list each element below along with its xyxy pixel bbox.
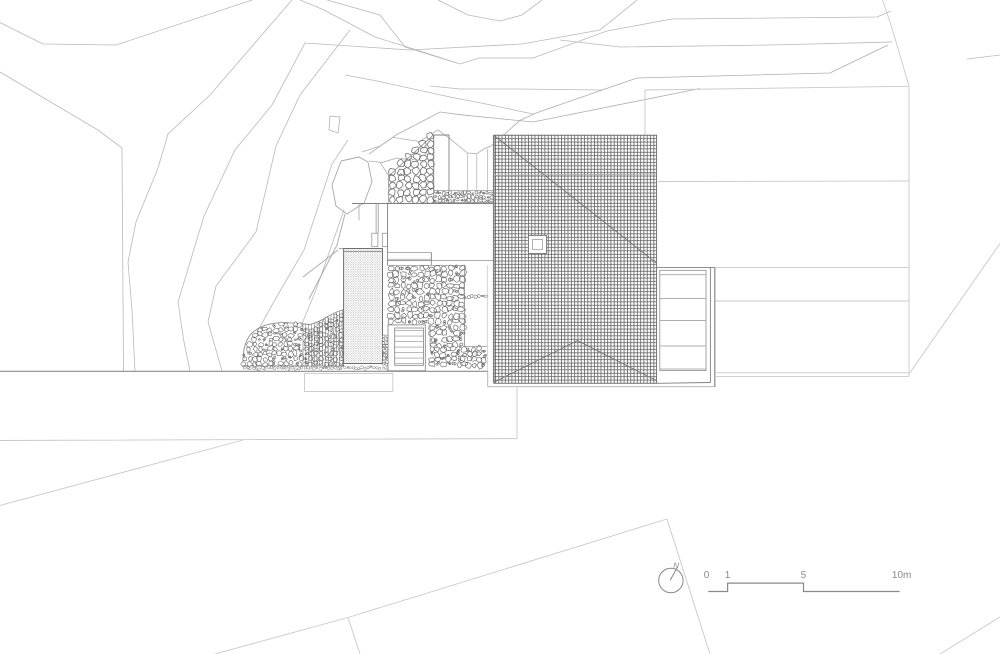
svg-text:1: 1: [725, 570, 731, 581]
svg-text:0: 0: [704, 570, 710, 581]
svg-text:N: N: [673, 561, 679, 570]
svg-text:5: 5: [801, 570, 807, 581]
svg-text:10m: 10m: [892, 570, 911, 581]
